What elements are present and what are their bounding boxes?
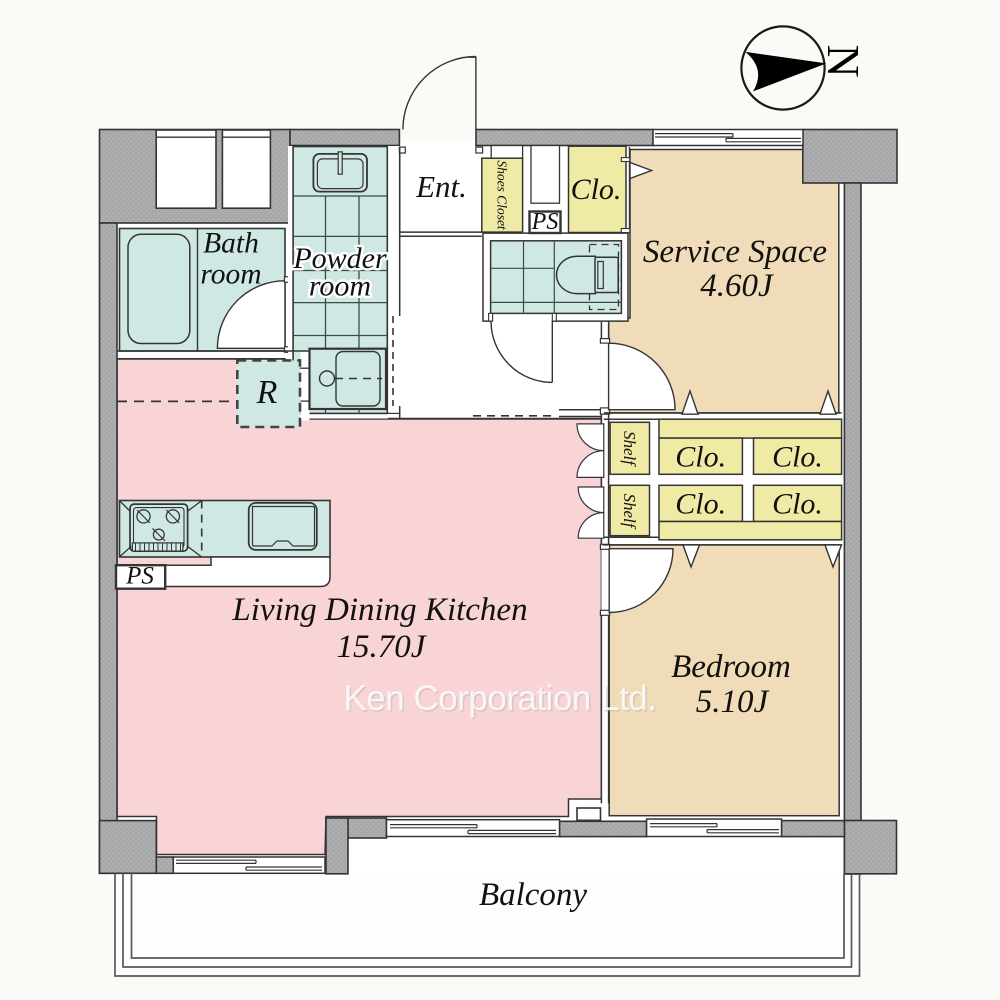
svg-text:5.10J: 5.10J	[696, 684, 770, 720]
svg-text:Ken Corporation Ltd.: Ken Corporation Ltd.	[344, 679, 657, 718]
svg-text:room: room	[309, 270, 371, 303]
svg-text:Shelf: Shelf	[620, 431, 639, 467]
svg-text:Ent.: Ent.	[415, 169, 467, 204]
svg-text:Living Dining Kitchen: Living Dining Kitchen	[231, 592, 527, 628]
svg-text:Shoes Closet: Shoes Closet	[495, 160, 510, 231]
svg-text:PS: PS	[125, 563, 154, 590]
svg-text:Clo.: Clo.	[571, 173, 622, 206]
svg-text:N: N	[818, 45, 869, 78]
svg-text:4.60J: 4.60J	[700, 268, 774, 304]
svg-text:room: room	[200, 259, 261, 291]
svg-text:Shelf: Shelf	[620, 494, 639, 530]
svg-text:Bedroom: Bedroom	[671, 649, 791, 685]
svg-text:R: R	[256, 374, 278, 411]
svg-text:15.70J: 15.70J	[337, 629, 427, 665]
svg-text:Clo.: Clo.	[675, 488, 726, 521]
svg-text:Balcony: Balcony	[479, 877, 587, 913]
svg-text:PS: PS	[531, 209, 559, 235]
svg-text:Clo.: Clo.	[772, 488, 823, 521]
svg-text:Bath: Bath	[203, 228, 259, 260]
svg-text:Clo.: Clo.	[772, 441, 823, 474]
svg-text:Service Space: Service Space	[643, 234, 827, 270]
svg-text:Clo.: Clo.	[675, 441, 726, 474]
